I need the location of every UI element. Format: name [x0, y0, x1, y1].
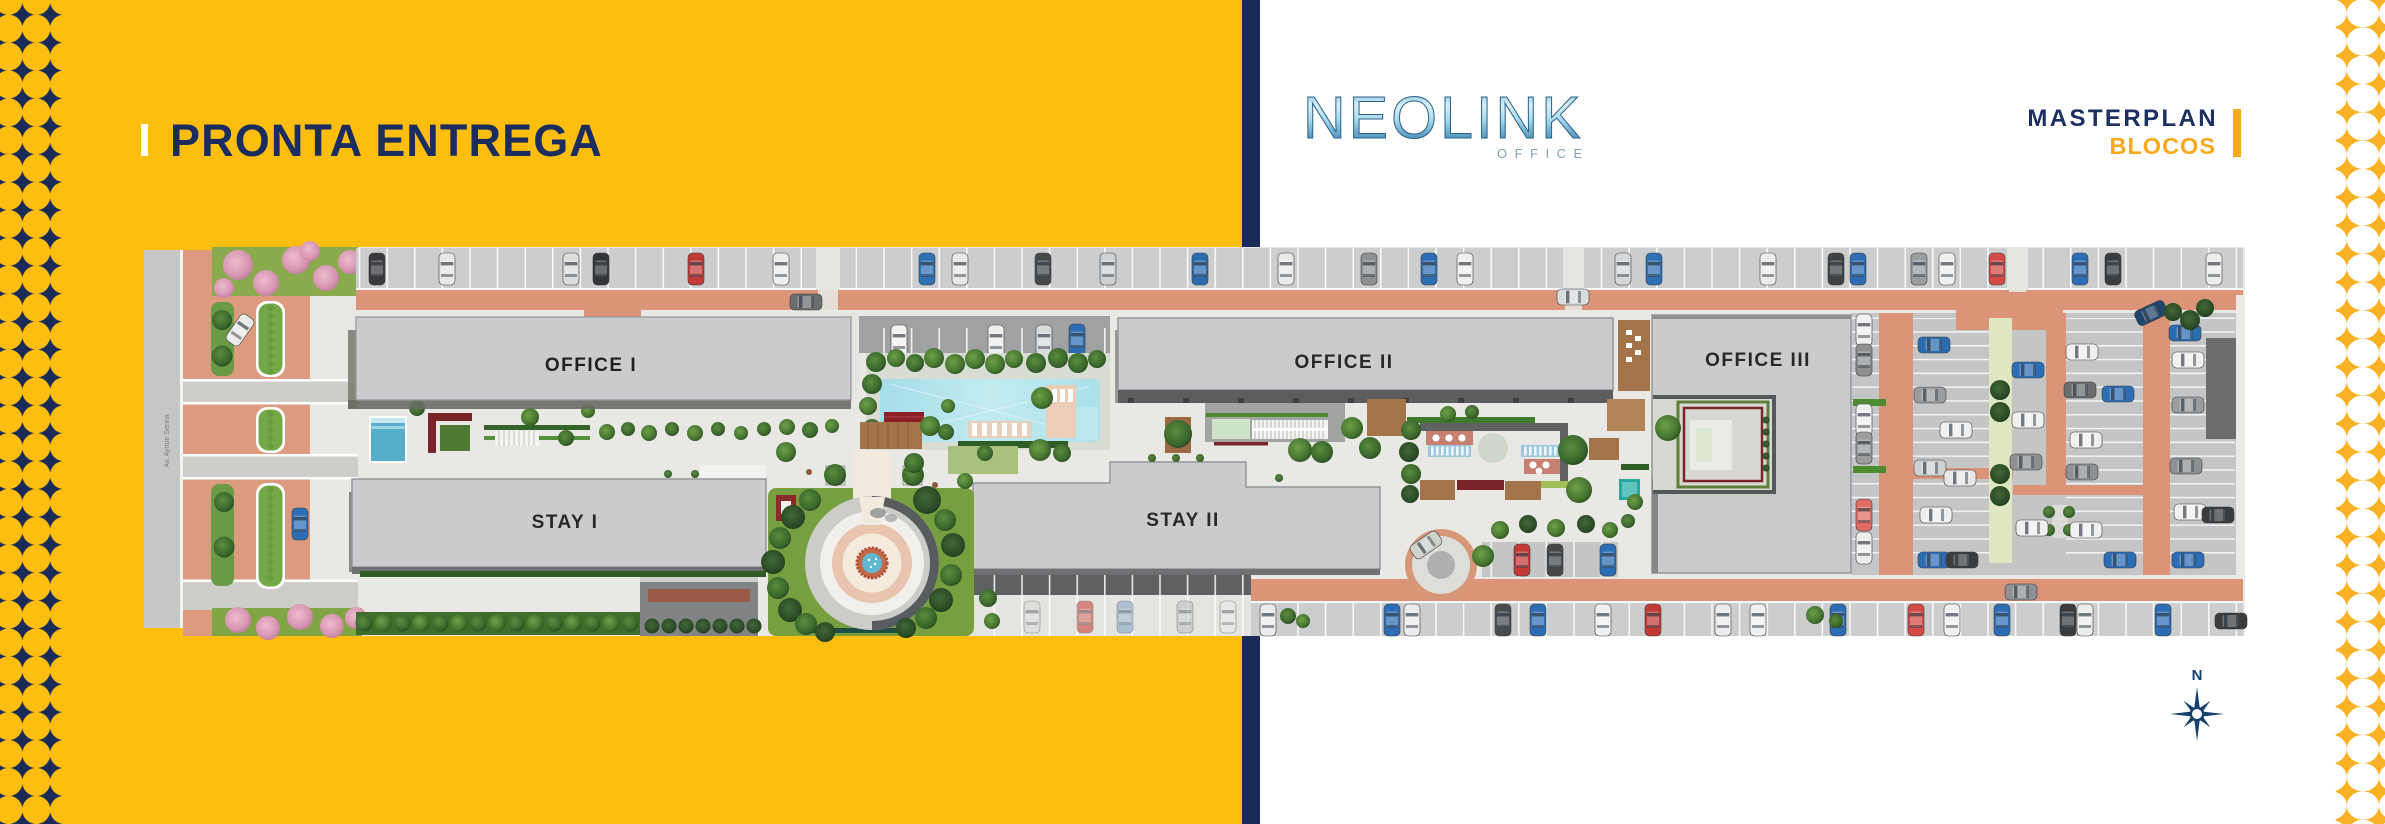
svg-text:OFFICE I: OFFICE I [545, 355, 637, 376]
svg-text:OFFICE II: OFFICE II [1295, 352, 1394, 373]
svg-text:STAY I: STAY I [532, 512, 599, 533]
svg-text:STAY II: STAY II [1146, 510, 1220, 531]
svg-text:Av. Ayrton Senna: Av. Ayrton Senna [164, 414, 171, 467]
svg-text:OFFICE III: OFFICE III [1705, 350, 1811, 371]
svg-text:N: N [2192, 667, 2203, 684]
